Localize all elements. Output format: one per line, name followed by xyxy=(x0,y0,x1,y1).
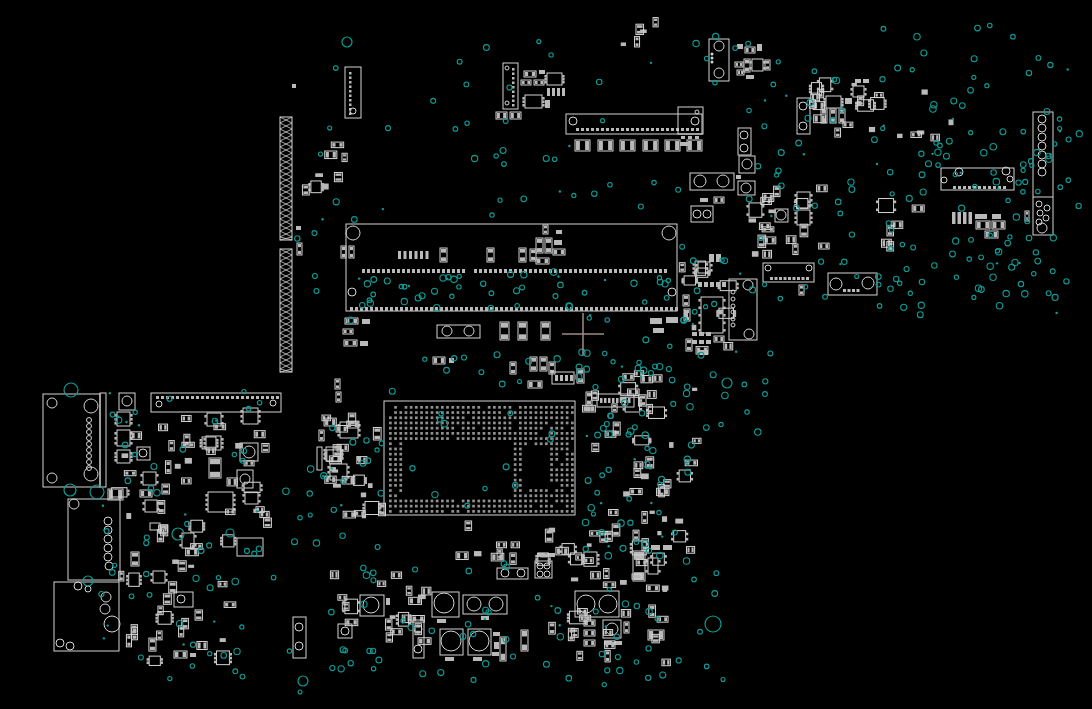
boardview-window xyxy=(0,0,1092,709)
board-canvas[interactable] xyxy=(0,0,1092,709)
